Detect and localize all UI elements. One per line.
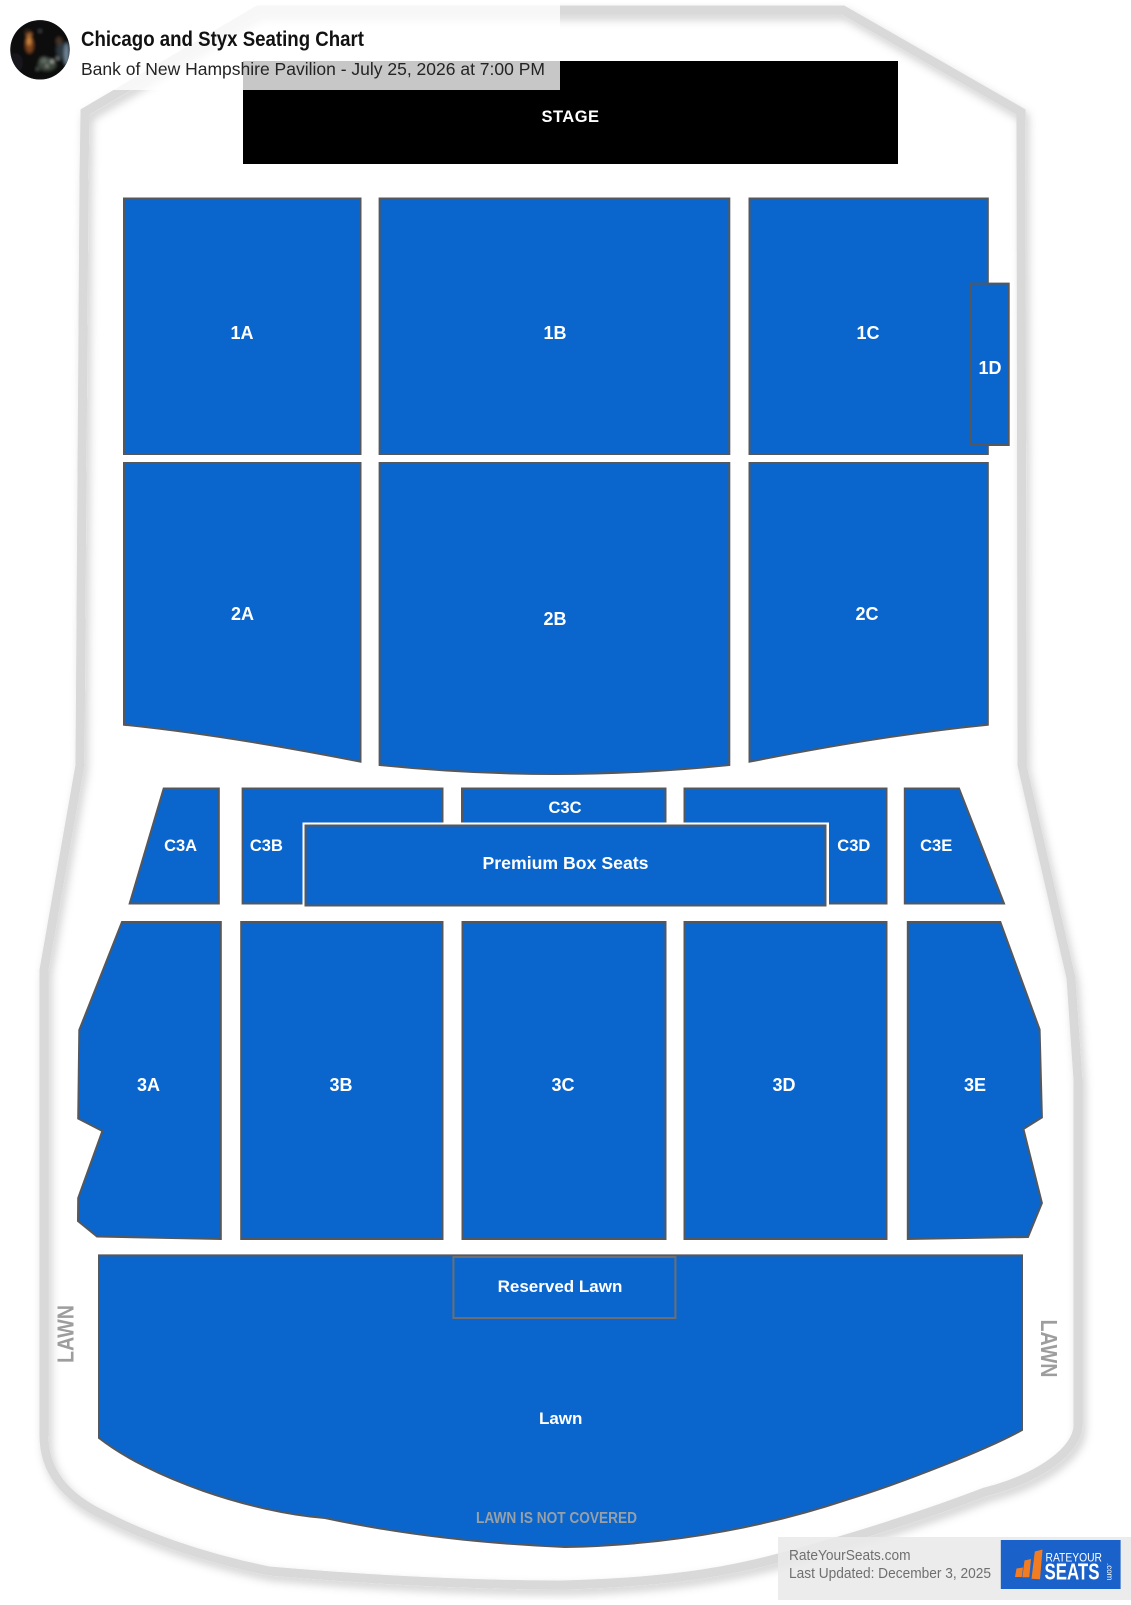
svg-text:LAWN: LAWN [53, 1305, 79, 1363]
svg-text:SEATS: SEATS [1045, 1559, 1100, 1585]
svg-text:1C: 1C [856, 323, 879, 343]
svg-text:Lawn: Lawn [539, 1409, 582, 1428]
svg-text:C3C: C3C [548, 799, 581, 817]
svg-text:STAGE: STAGE [541, 108, 599, 126]
svg-text:LAWN: LAWN [1036, 1320, 1062, 1378]
svg-text:Premium Box Seats: Premium Box Seats [483, 853, 649, 873]
svg-text:3E: 3E [964, 1075, 986, 1095]
svg-text:2A: 2A [231, 604, 254, 624]
svg-text:2C: 2C [855, 604, 878, 624]
svg-text:3D: 3D [772, 1075, 795, 1095]
svg-text:3B: 3B [329, 1075, 352, 1095]
svg-text:1A: 1A [230, 323, 253, 343]
svg-text:C3A: C3A [164, 837, 197, 855]
svg-text:C3B: C3B [250, 837, 283, 855]
svg-text:Reserved Lawn: Reserved Lawn [498, 1277, 623, 1296]
svg-text:RateYourSeats.com: RateYourSeats.com [789, 1547, 911, 1564]
svg-text:3A: 3A [137, 1075, 160, 1095]
svg-text:2B: 2B [543, 609, 566, 629]
svg-text:Bank of New Hampshire Pavilion: Bank of New Hampshire Pavilion - July 25… [81, 59, 545, 79]
svg-text:1D: 1D [978, 358, 1001, 378]
svg-text:C3E: C3E [920, 837, 952, 855]
svg-text:.com: .com [1105, 1563, 1114, 1581]
svg-text:3C: 3C [551, 1075, 574, 1095]
svg-text:1B: 1B [543, 323, 566, 343]
svg-text:Chicago and Styx Seating Chart: Chicago and Styx Seating Chart [81, 27, 364, 51]
svg-text:Last Updated: December 3, 2025: Last Updated: December 3, 2025 [789, 1565, 991, 1582]
svg-text:C3D: C3D [837, 837, 870, 855]
svg-text:LAWN IS NOT COVERED: LAWN IS NOT COVERED [476, 1510, 637, 1527]
